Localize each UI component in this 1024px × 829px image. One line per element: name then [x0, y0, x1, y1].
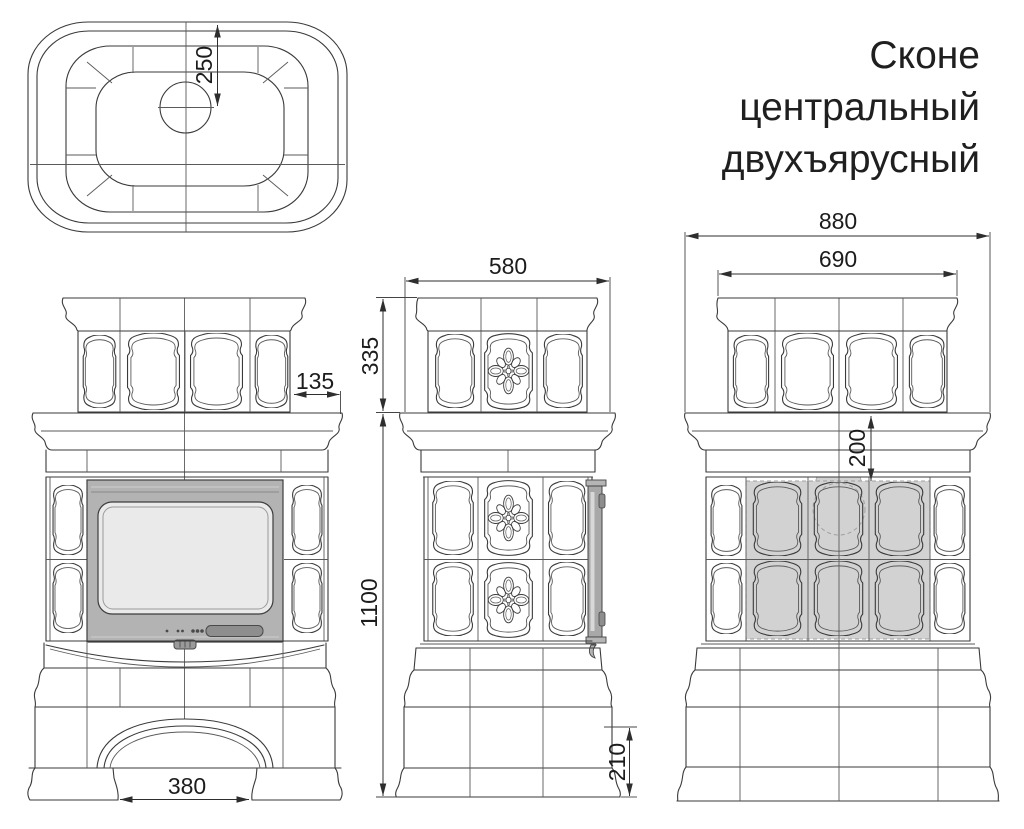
front-right-foot	[252, 768, 342, 800]
dim-label-200: 200	[844, 429, 870, 467]
dim-380: 380	[120, 773, 249, 800]
dim-label-1100: 1100	[356, 578, 382, 627]
side-door	[586, 480, 606, 658]
dim-label-690: 690	[819, 246, 857, 272]
drawing-canvas: 250 135	[0, 0, 1024, 829]
top-view: 250	[28, 22, 347, 232]
front-view: 135	[28, 298, 343, 800]
drawing-title: Сконе центральный двухъярусный	[722, 30, 980, 186]
dim-label-250: 250	[191, 46, 217, 84]
dim-200: 200	[844, 416, 871, 481]
dim-label-335: 335	[357, 337, 383, 375]
side-view: 580 335	[356, 253, 637, 797]
dim-250: 250	[191, 25, 218, 106]
front-neck	[46, 450, 328, 477]
dim-label-210: 210	[604, 743, 630, 781]
side-lower-tier	[424, 477, 592, 641]
insert-handle	[206, 626, 263, 637]
fireplace-insert	[87, 480, 283, 649]
dim-690: 690	[718, 246, 957, 296]
dim-label-380: 380	[168, 773, 206, 799]
back-view: 880 690 200	[677, 208, 999, 801]
dim-210: 210	[604, 727, 637, 797]
front-left-foot	[28, 768, 118, 800]
door-hinge-hook	[589, 645, 596, 658]
insert-glass	[98, 502, 273, 614]
dim-label-135: 135	[296, 368, 334, 394]
side-base	[396, 641, 621, 797]
dim-label-580: 580	[489, 253, 527, 279]
dim-label-880: 880	[819, 208, 857, 234]
title-line-1: Сконе	[722, 30, 980, 82]
dim-580: 580	[405, 253, 610, 412]
heat-exchange-zone	[746, 481, 930, 639]
dim-135: 135	[294, 368, 341, 414]
dim-1100: 1100	[356, 414, 396, 797]
back-lower-tier	[706, 477, 970, 641]
back-neck	[706, 450, 970, 477]
dim-335: 335	[357, 298, 417, 413]
title-line-2: центральный	[722, 82, 980, 134]
title-line-3: двухъярусный	[722, 134, 980, 186]
side-neck	[421, 450, 595, 477]
